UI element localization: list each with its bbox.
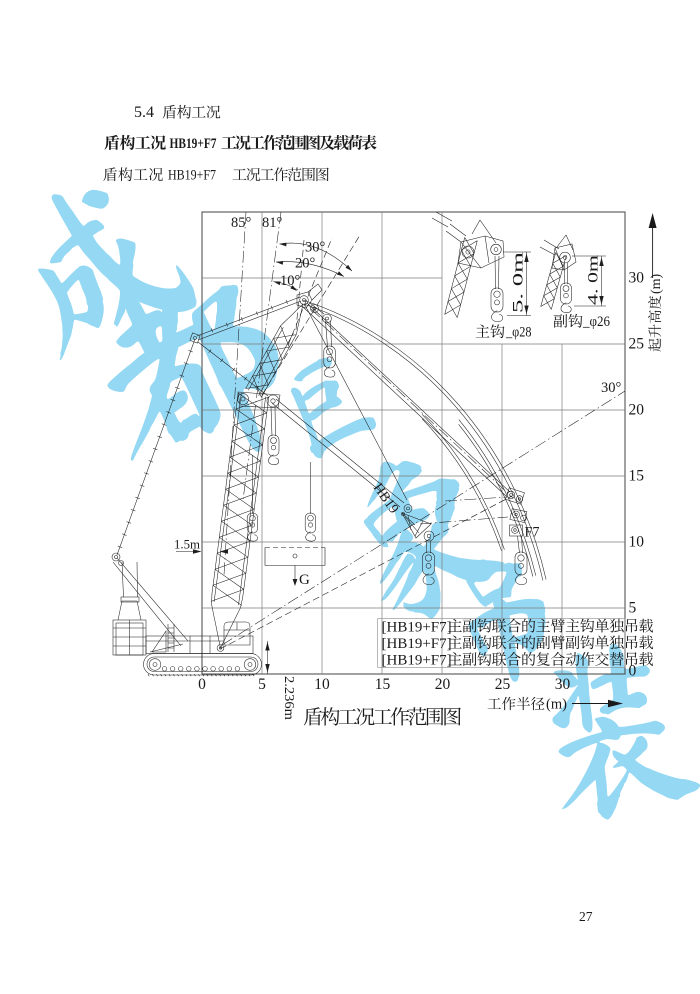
svg-text:[HB19+F7]: [HB19+F7] [382, 619, 452, 635]
svg-text:30°: 30° [305, 240, 326, 256]
svg-text:81°: 81° [262, 215, 283, 231]
svg-text:0: 0 [629, 663, 637, 680]
svg-text:_φ28: _φ28 [505, 325, 531, 341]
svg-text:15: 15 [375, 676, 391, 693]
svg-text:[HB19+F7]: [HB19+F7] [382, 636, 452, 652]
svg-text:20: 20 [435, 676, 451, 693]
svg-text:HB19+F7: HB19+F7 [168, 168, 216, 184]
svg-text:30: 30 [555, 676, 571, 693]
svg-text:1.5m: 1.5m [174, 537, 200, 552]
svg-text:15: 15 [629, 468, 645, 485]
svg-text:27: 27 [579, 909, 593, 924]
svg-text:30: 30 [629, 270, 645, 287]
svg-text:85°: 85° [231, 215, 252, 231]
svg-text:20: 20 [629, 402, 645, 419]
svg-text:20°: 20° [295, 256, 316, 272]
svg-text:G: G [299, 572, 310, 588]
svg-text:5: 5 [258, 676, 266, 693]
svg-text:F7: F7 [525, 525, 540, 541]
svg-text:0: 0 [198, 676, 206, 693]
svg-text:_φ26: _φ26 [582, 314, 610, 330]
svg-text:2.236m: 2.236m [282, 676, 297, 721]
svg-text:5: 5 [629, 600, 637, 617]
svg-text:10°: 10° [280, 273, 301, 289]
svg-text:5.4: 5.4 [134, 104, 154, 121]
svg-text:10: 10 [629, 534, 645, 551]
svg-text:(m): (m) [546, 697, 567, 713]
svg-text:25: 25 [629, 336, 645, 353]
svg-text:30°: 30° [601, 380, 622, 396]
svg-text:(m): (m) [649, 273, 664, 294]
svg-text:25: 25 [495, 676, 511, 693]
svg-text:5. 0m: 5. 0m [511, 251, 527, 313]
svg-text:[HB19+F7]: [HB19+F7] [382, 653, 452, 669]
svg-text:HB19+F7: HB19+F7 [170, 136, 217, 152]
svg-text:10: 10 [314, 676, 330, 693]
svg-text:4. 0m: 4. 0m [586, 254, 602, 305]
